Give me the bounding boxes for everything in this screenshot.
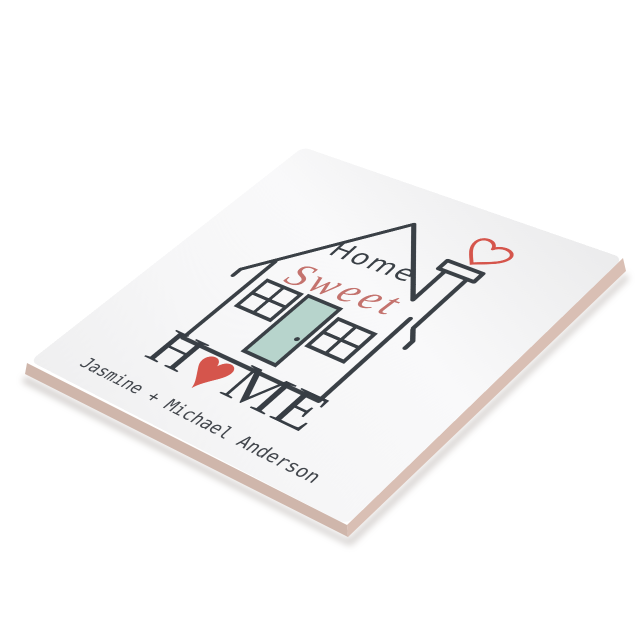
roof-line-right — [397, 330, 422, 349]
chimney-right-side — [414, 279, 468, 328]
left-window-mullion-h — [252, 293, 286, 307]
chimney-left-side — [413, 271, 445, 300]
product-photo-scene: Home Sweet H♥ME Jasmine + Michael Anders… — [0, 0, 644, 644]
right-window-mullion-h — [323, 332, 359, 348]
